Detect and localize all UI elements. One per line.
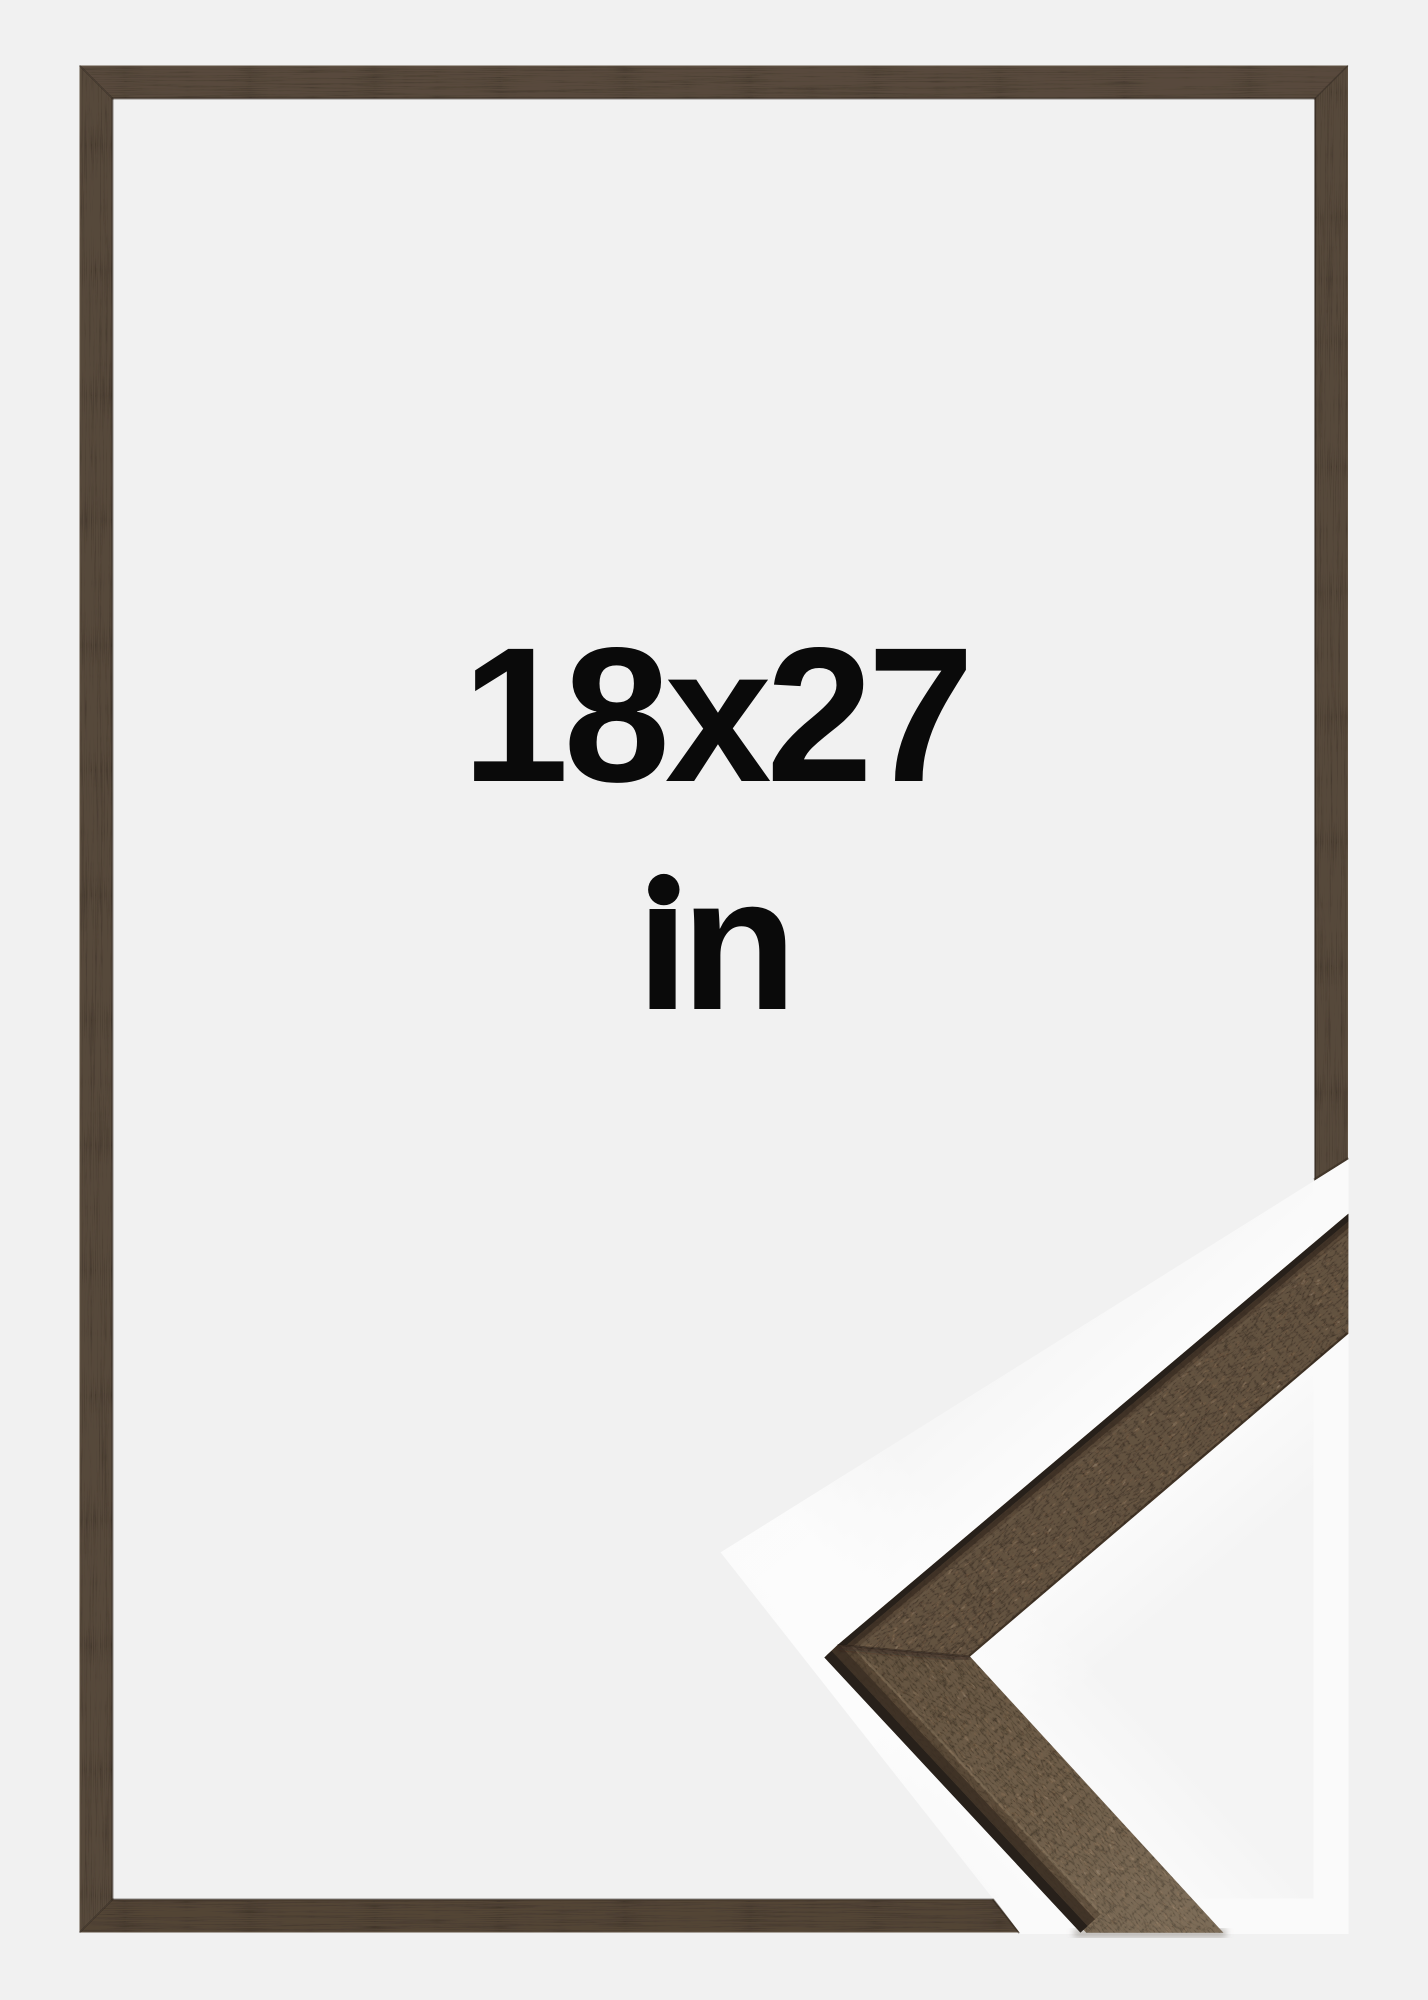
svg-text:18x27: 18x27 xyxy=(462,607,969,822)
